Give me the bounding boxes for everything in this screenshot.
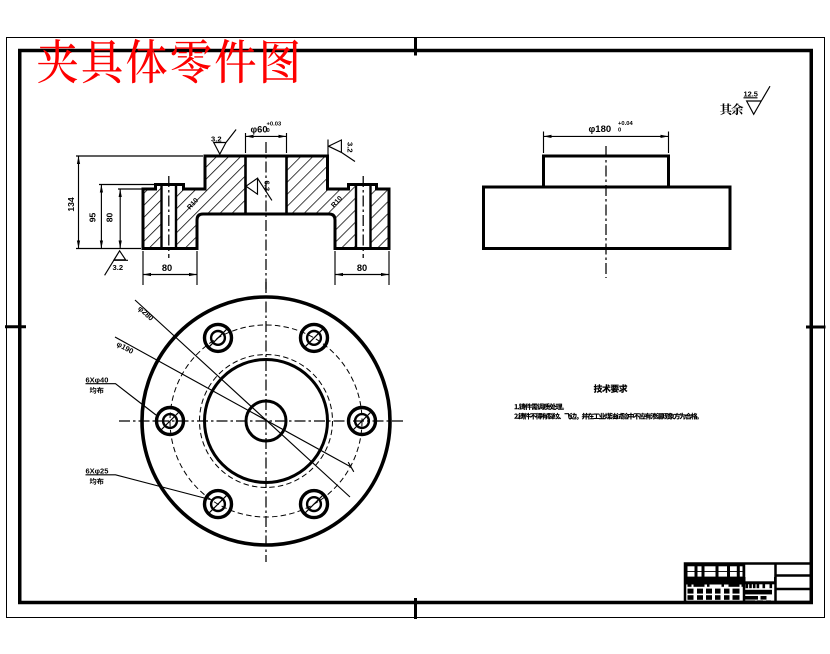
svg-text:3.2: 3.2 [211, 135, 222, 144]
svg-text:0: 0 [267, 128, 270, 134]
svg-text:6.3: 6.3 [263, 181, 272, 192]
svg-text:6Xφ25: 6Xφ25 [86, 467, 109, 476]
svg-text:φ60: φ60 [251, 125, 268, 135]
svg-text:12.5: 12.5 [744, 90, 758, 99]
svg-text:3.2: 3.2 [346, 142, 355, 153]
svg-text:φ180: φ180 [589, 124, 612, 135]
svg-text:95: 95 [88, 213, 98, 223]
svg-text:+0.03: +0.03 [267, 122, 282, 128]
svg-text:3.2: 3.2 [113, 263, 124, 272]
svg-text:80: 80 [357, 263, 367, 273]
svg-text:134: 134 [66, 197, 76, 212]
svg-text:80: 80 [105, 213, 115, 223]
svg-text:+0.04: +0.04 [618, 121, 633, 127]
svg-text:80: 80 [162, 263, 172, 273]
svg-text:0: 0 [618, 128, 621, 134]
